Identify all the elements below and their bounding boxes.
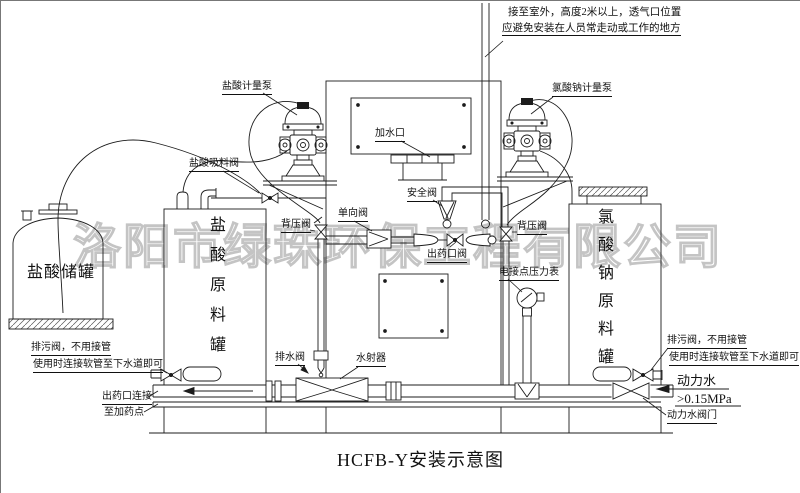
power-water-pipe	[153, 381, 673, 407]
blowdown-left-label-line2: 使用时连接软管至下水道即可	[33, 359, 163, 373]
hcl-suction-valve	[211, 193, 326, 203]
fill-port-label: 加水口	[375, 128, 405, 142]
blowdown-left-label-line1: 排污阀，不用接管	[31, 342, 111, 356]
chlorate-raw-tank	[569, 187, 661, 385]
suction-valve-label: 盐酸吸料阀	[189, 158, 239, 172]
outlet-connection-label-line2: 至加药点	[104, 407, 144, 420]
water-ejector	[296, 378, 401, 401]
power-water-valve-label: 动力水阀门	[667, 410, 717, 424]
chlorate-metering-pump	[503, 98, 551, 177]
installation-diagram: 洛阳市绿珠环保工程有限公司	[0, 0, 800, 493]
ejector-label: 水射器	[356, 353, 386, 367]
base-frame	[149, 407, 673, 433]
vent-pipe	[482, 3, 490, 228]
blowdown-right-label-line1: 排污阀，不用接管	[667, 335, 747, 349]
safety-valve	[438, 187, 508, 228]
chlorate-pump-label: 氯酸钠计量泵	[552, 83, 612, 97]
blowdown-right-label-line2: 使用时连接软管至下水道即可	[669, 352, 799, 366]
acid-raw-tank-label: 盐酸原料罐	[205, 216, 225, 366]
back-pressure-valve-right	[500, 227, 512, 385]
check-valve-label: 单向阀	[338, 208, 368, 222]
safety-valve-label: 安全阀	[407, 188, 437, 202]
dosing-outlet-line	[326, 230, 496, 248]
back-pressure-left-label: 背压阀	[281, 219, 311, 233]
power-water-pressure-label: >0.15MPa	[677, 391, 732, 407]
pressure-gauge	[515, 288, 544, 399]
power-water-label: 动力水	[677, 373, 716, 389]
solution-tank	[326, 81, 501, 385]
vent-note-line2: 应避免安装在人员常走动或工作的地方	[502, 22, 681, 36]
fill-port	[391, 155, 454, 180]
outlet-valve-label: 出药口阀	[427, 249, 467, 263]
hoses	[58, 100, 572, 313]
drain-valve-label: 排水阀	[275, 352, 305, 366]
hcl-metering-pump	[279, 102, 327, 181]
hcl-pump-label: 盐酸计量泵	[222, 81, 272, 95]
back-pressure-right-label: 背压阀	[517, 221, 547, 235]
vent-note-line1: 接至室外，高度2米以上，透气口位置	[508, 6, 681, 19]
outlet-connection-label-line1: 出药口连接	[102, 391, 152, 405]
storage-tank-label: 盐酸储罐	[27, 263, 95, 283]
chlorate-raw-tank-label: 氯酸钠原料罐	[593, 208, 613, 376]
diagram-title: HCFB-Y安装示意图	[337, 449, 504, 472]
gauge-label: 电接点压力表	[499, 267, 559, 281]
